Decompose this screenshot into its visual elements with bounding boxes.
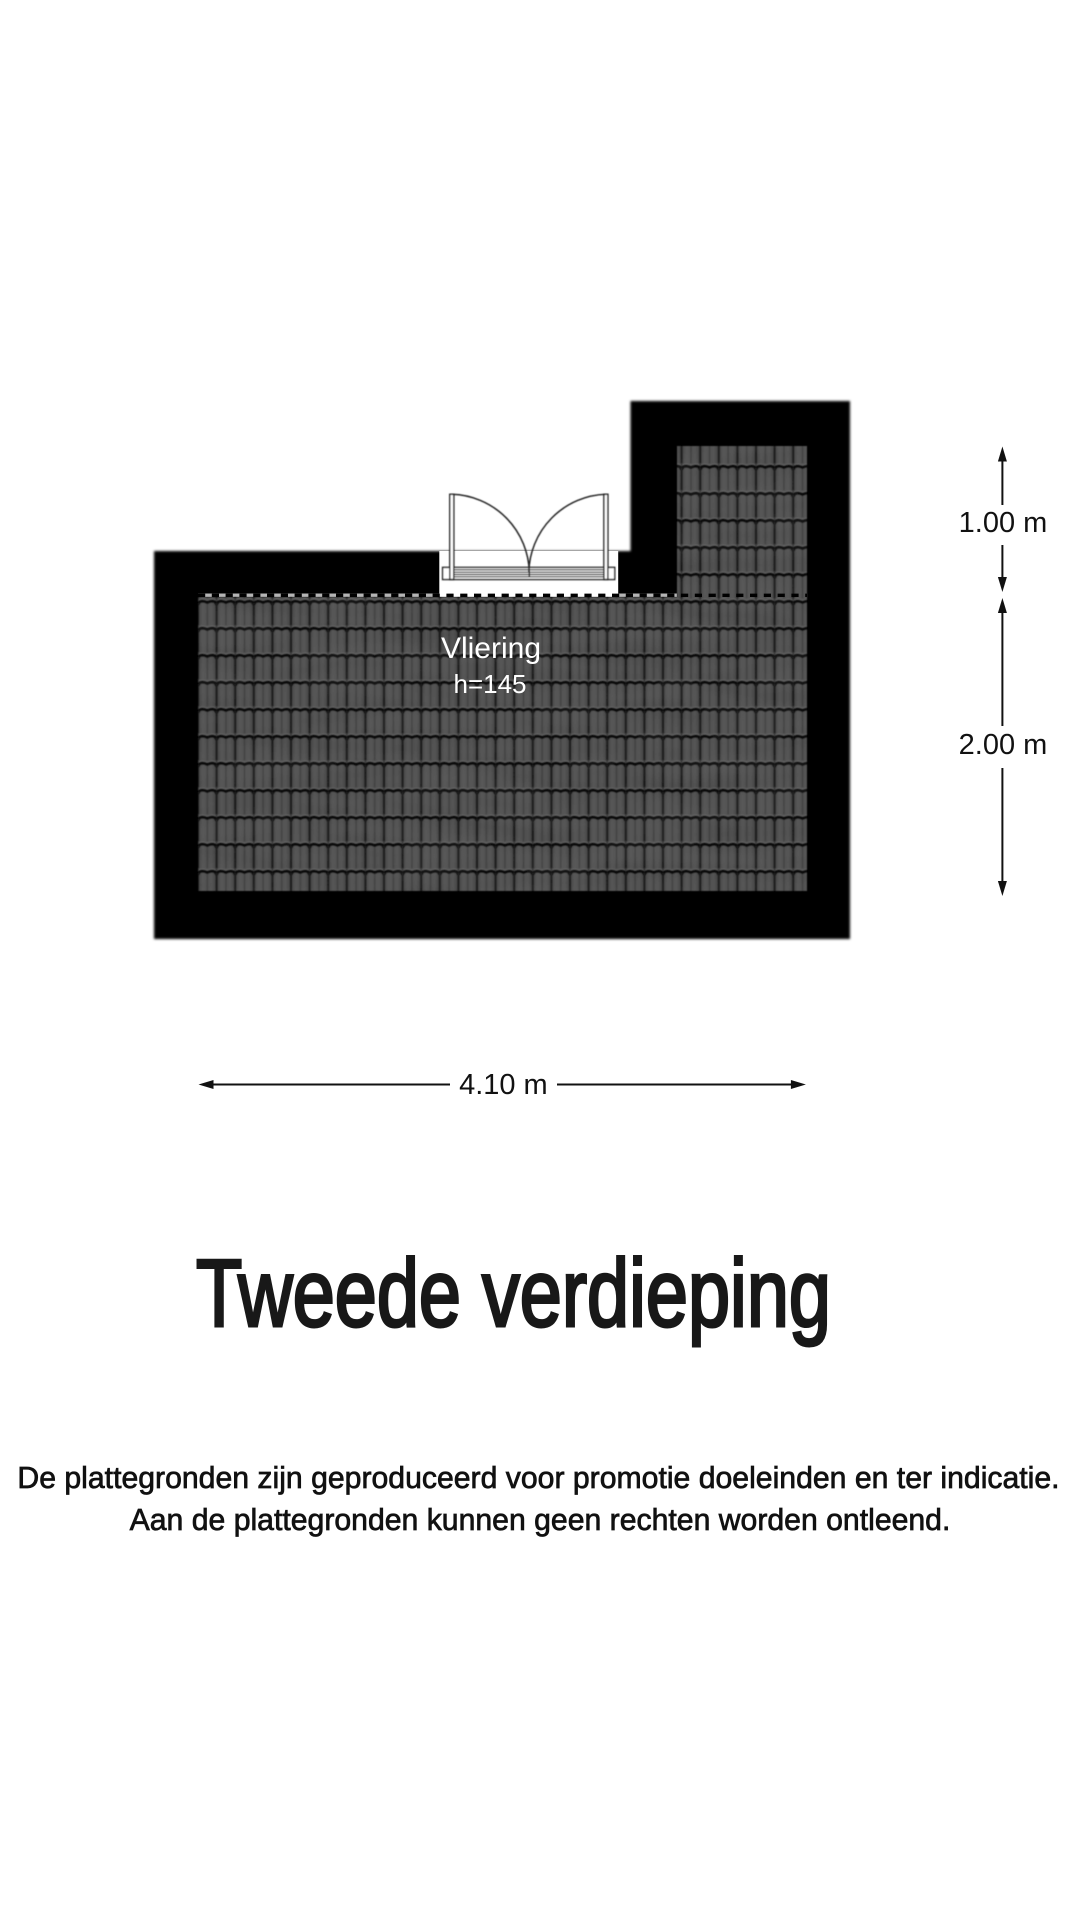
svg-text:2.00 m: 2.00 m [959,729,1048,761]
svg-text:h=145: h=145 [453,669,526,699]
svg-text:Aan de plattegronden kunnen ge: Aan de plattegronden kunnen geen rechten… [130,1504,951,1537]
svg-text:Tweede verdieping: Tweede verdieping [196,1240,831,1347]
svg-text:4.10 m: 4.10 m [459,1069,548,1101]
svg-text:De plattegronden zijn geproduc: De plattegronden zijn geproduceerd voor … [17,1462,1059,1495]
svg-text:Vliering: Vliering [441,632,541,665]
svg-text:1.00 m: 1.00 m [959,507,1048,539]
